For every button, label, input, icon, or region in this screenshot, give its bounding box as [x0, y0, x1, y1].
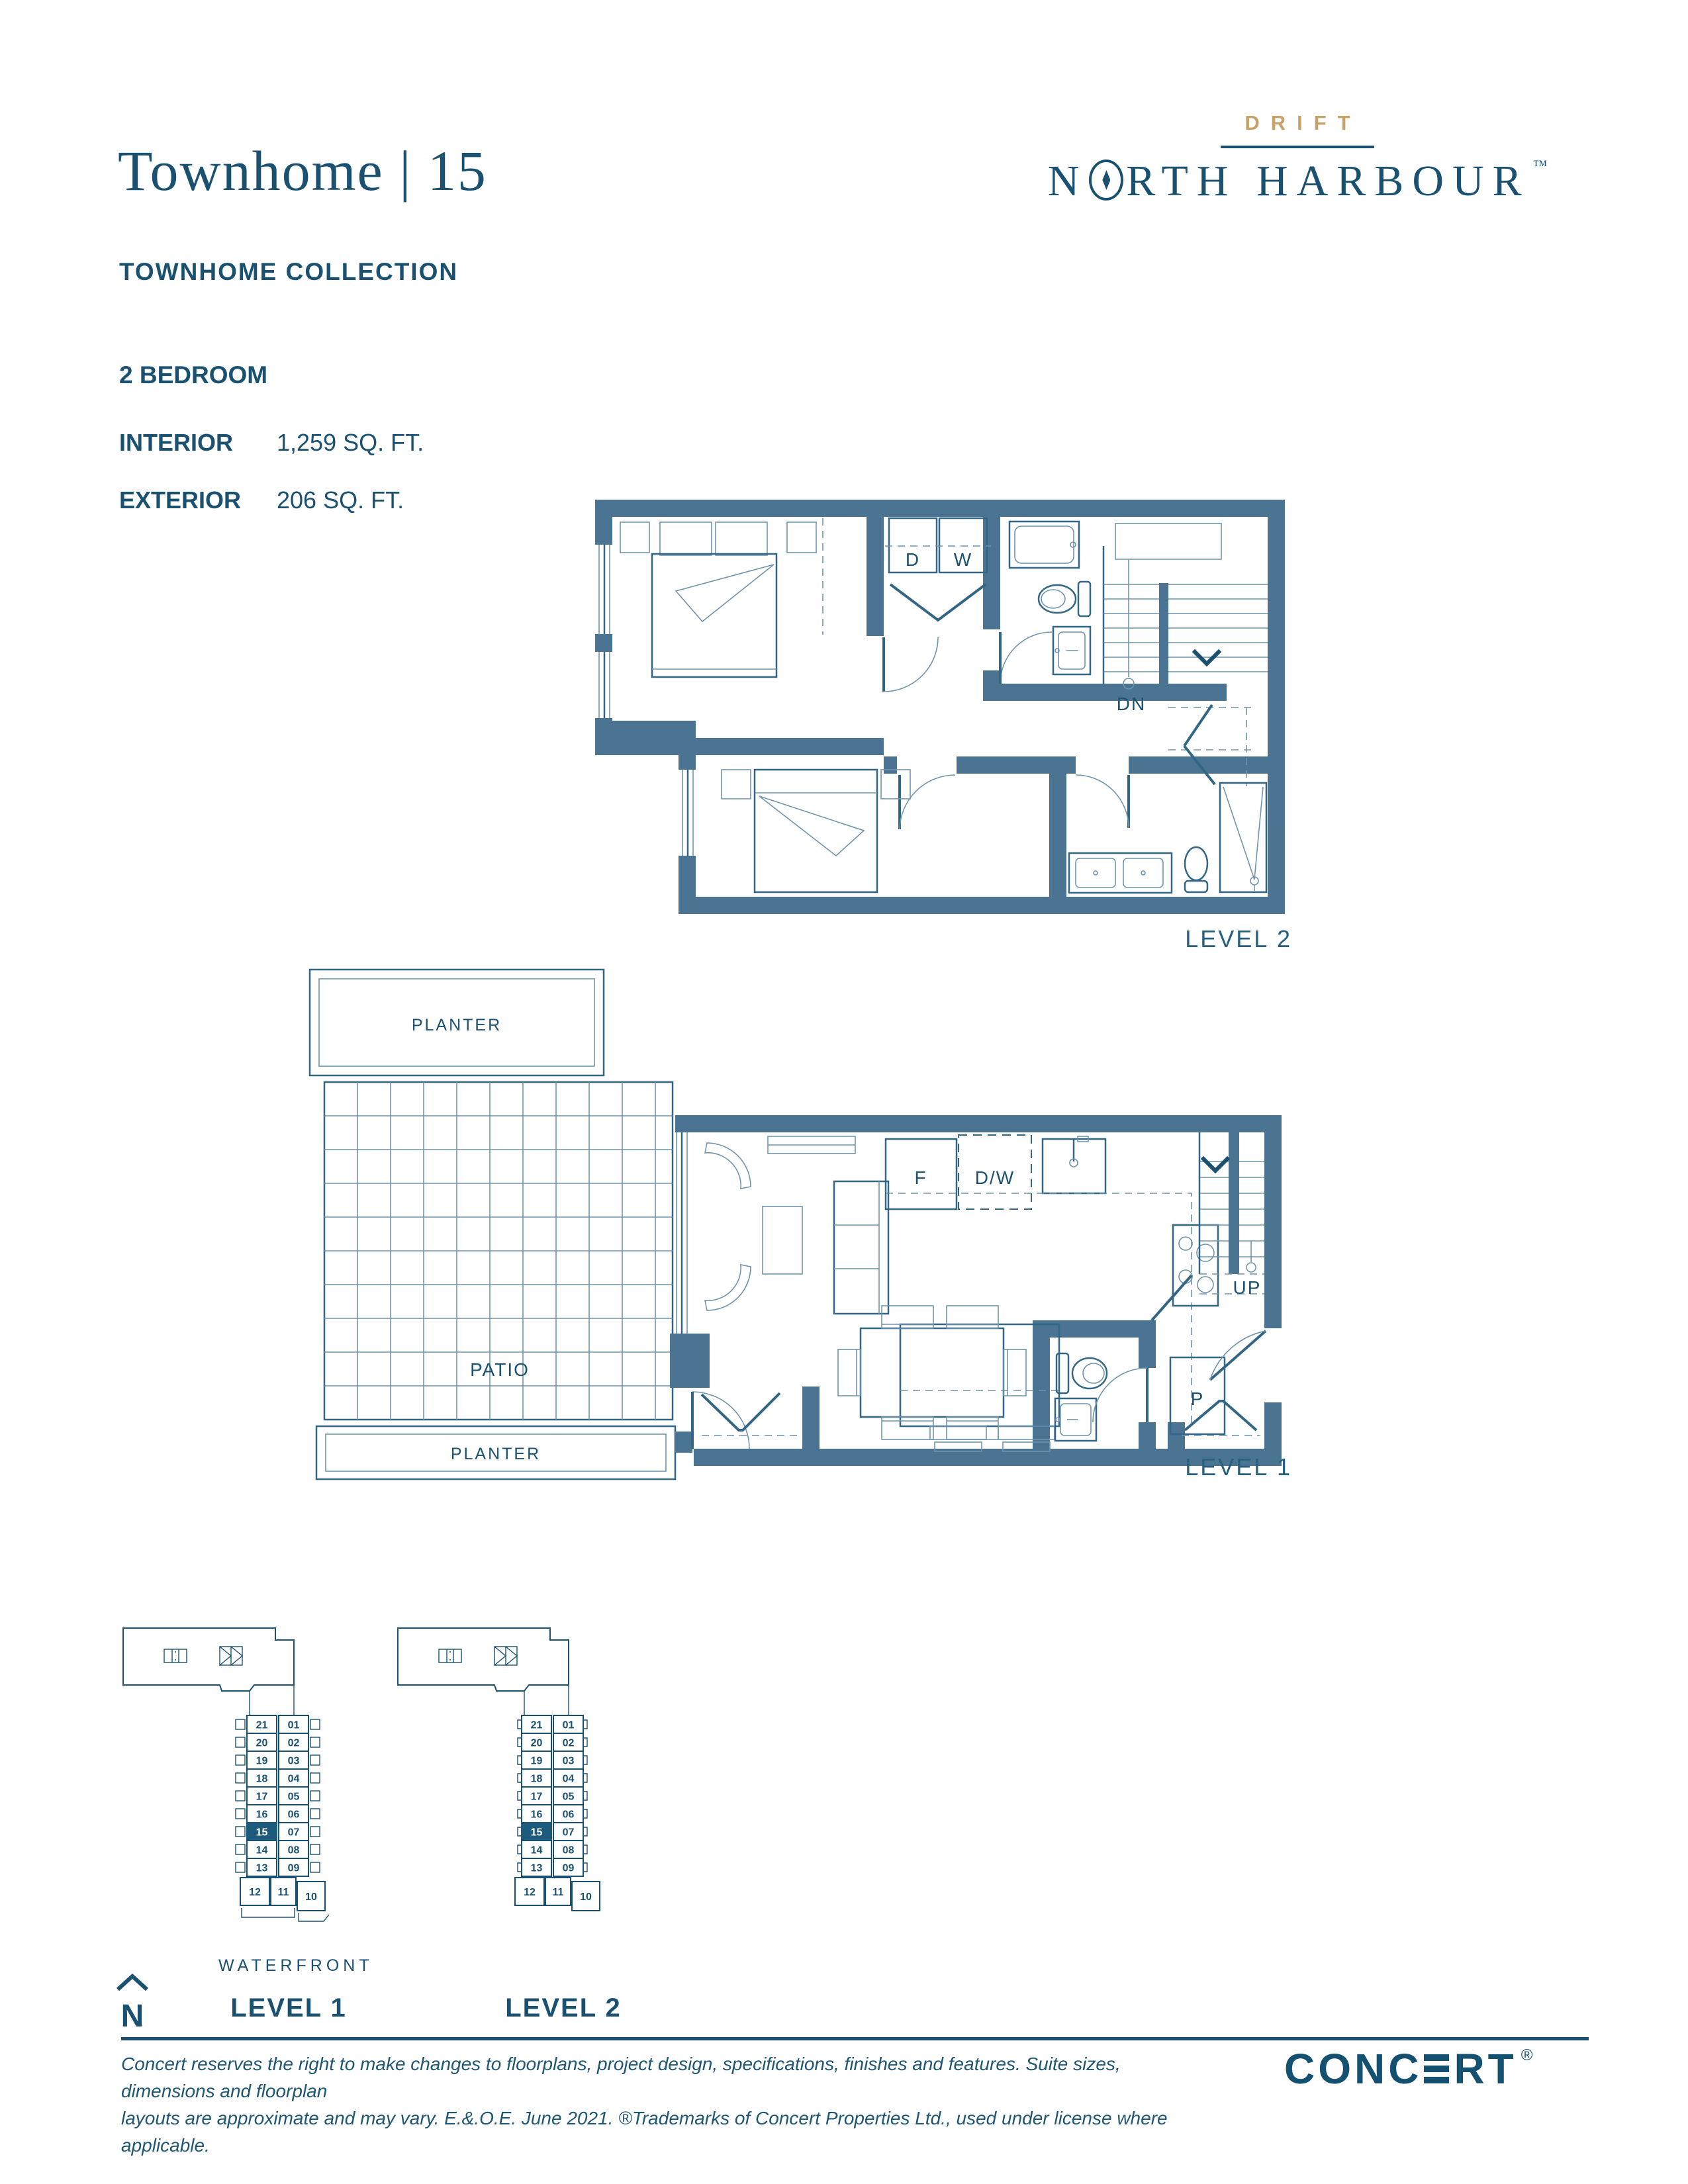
keyplan-unit-09: 09 — [288, 1863, 300, 1874]
level1-entry — [702, 1331, 1266, 1435]
keyplan-unit-07: 07 — [563, 1827, 575, 1839]
keyplan-unit-05: 05 — [563, 1792, 575, 1803]
level2-laundry: D W — [885, 518, 991, 620]
level1-living-furniture — [705, 1136, 888, 1314]
keyplan-unit-06: 06 — [288, 1809, 300, 1821]
keyplan-unit-03: 03 — [288, 1756, 300, 1767]
keyplan-unit-12: 12 — [249, 1887, 261, 1898]
keyplan-unit-20: 20 — [531, 1738, 543, 1749]
bath-door-arc — [1000, 632, 1052, 684]
ensuite-toilet-icon — [1185, 847, 1207, 880]
keyplan-unit-11: 11 — [553, 1887, 564, 1898]
level2-windows — [594, 545, 697, 856]
keyplan-unit-14: 14 — [256, 1845, 268, 1856]
level2-walkin-closet — [1168, 705, 1251, 786]
level2-floorplan: D W DN — [586, 485, 1294, 929]
level1-planter-bottom: PLANTER — [316, 1426, 675, 1479]
north-rest: RTH HARBOUR — [1126, 157, 1530, 205]
registered-symbol: ® — [1521, 2048, 1533, 2064]
keyplan-unit-16: 16 — [256, 1809, 268, 1821]
toilet-icon — [1039, 585, 1076, 613]
keyplan-unit-20: 20 — [256, 1738, 268, 1749]
hall-closet-bifold — [702, 1393, 780, 1430]
level1-patio: PATIO — [324, 1082, 673, 1420]
coffee-table-icon — [763, 1206, 802, 1274]
keyplan-unit-07: 07 — [288, 1827, 300, 1839]
bedroom-count: 2 BEDROOM — [119, 361, 267, 389]
interior-label: INTERIOR — [119, 429, 233, 457]
keyplan-level1: 2101200219031804170516061507140813091211… — [119, 1616, 331, 1931]
level2-ensuite — [1069, 783, 1266, 893]
keyplan-unit-13: 13 — [531, 1863, 543, 1874]
keyplan-level1-label: LEVEL 1 — [218, 1993, 359, 2023]
keyplan-unit-09: 09 — [563, 1863, 575, 1874]
keyplan-unit-15: 15 — [531, 1827, 543, 1839]
stair-up-arrow-icon — [1203, 1159, 1227, 1171]
keyplan-unit-18: 18 — [531, 1774, 543, 1785]
drift-wordmark: DRIFT — [1013, 111, 1582, 135]
keyplan-unit-19: 19 — [531, 1756, 543, 1767]
powder-toilet-icon — [1072, 1358, 1107, 1388]
lounge-chair-icon — [705, 1143, 751, 1189]
keyplan-unit-10: 10 — [305, 1891, 317, 1903]
keyplan-unit-12: 12 — [524, 1887, 536, 1898]
keyplan-unit-08: 08 — [563, 1845, 575, 1856]
dining-table-icon — [861, 1328, 1004, 1417]
keyplan-unit-06: 06 — [563, 1809, 575, 1821]
concert-word-right: RT — [1454, 2048, 1517, 2090]
exterior-spec-row: EXTERIOR 206 SQ. FT. — [119, 486, 649, 514]
elevator-icons — [164, 1647, 242, 1665]
level1-living-window — [674, 1132, 749, 1449]
compass-o-icon — [1089, 159, 1123, 201]
entry-door-leaf — [1210, 1331, 1266, 1380]
dryer-label: D — [906, 549, 920, 570]
level2-plan-label: LEVEL 2 — [1094, 925, 1292, 953]
level2-bedroom2 — [722, 770, 910, 892]
stair-down-arrow-icon — [1195, 652, 1219, 664]
interior-value: 1,259 SQ. FT. — [277, 429, 424, 457]
patio-door-arc — [692, 1392, 749, 1449]
fridge-label: F — [914, 1167, 927, 1188]
keyplan-unit-19: 19 — [256, 1756, 268, 1767]
keyplan-unit-14: 14 — [531, 1845, 543, 1856]
keyplan-unit-01: 01 — [288, 1720, 300, 1731]
concert-e-bars-icon — [1424, 2052, 1449, 2085]
exterior-value: 206 SQ. FT. — [277, 486, 404, 514]
planter-top-label: PLANTER — [412, 1016, 502, 1034]
exterior-label: EXTERIOR — [119, 486, 241, 514]
concert-word-left: CONC — [1284, 2048, 1422, 2090]
collection-subtitle: TOWNHOME COLLECTION — [119, 258, 458, 286]
keyplan-unit-04: 04 — [288, 1774, 300, 1785]
keyplan-unit-16: 16 — [531, 1809, 543, 1821]
north-label: N — [121, 1999, 144, 2033]
level1-floorplan: PLANTER PATIO PLANTER — [305, 963, 1297, 1486]
level2-doors — [884, 637, 1129, 829]
keyplan-unit-21: 21 — [256, 1720, 268, 1731]
level1-dining — [838, 1306, 1026, 1439]
level1-plan-label: LEVEL 1 — [1094, 1453, 1292, 1481]
floorplan-sheet: { "document": { "plan_name": "Townhome |… — [0, 0, 1688, 2184]
elevator-icons — [439, 1647, 517, 1665]
keyplan-unit-13: 13 — [256, 1863, 268, 1874]
keyplan-unit-03: 03 — [563, 1756, 575, 1767]
footer-divider-line — [121, 2037, 1589, 2040]
trademark-symbol: ™ — [1533, 157, 1548, 173]
stairs-up-label: UP — [1233, 1277, 1262, 1298]
waterfront-label: WATERFRONT — [218, 1956, 359, 1976]
sofa-icon — [834, 1181, 888, 1314]
washer-label: W — [954, 549, 972, 570]
keyplan-unit-08: 08 — [288, 1845, 300, 1856]
keyplan-unit-10: 10 — [580, 1891, 592, 1903]
page-title: Townhome | 15 — [118, 138, 487, 204]
north-n: N — [1048, 157, 1088, 205]
lounge-chair-icon — [705, 1265, 751, 1310]
keyplan-unit-21: 21 — [531, 1720, 543, 1731]
north-arrow: N — [113, 1972, 152, 2033]
keyplan-unit-17: 17 — [256, 1792, 268, 1803]
disclaimer-text: Concert reserves the right to make chang… — [121, 2050, 1194, 2159]
level1-planter-top: PLANTER — [310, 970, 604, 1075]
pantry-label: P — [1191, 1388, 1205, 1409]
stairs-down-label: DN — [1117, 694, 1146, 714]
keyplan-unit-11: 11 — [278, 1887, 289, 1898]
dishwasher-label: D/W — [975, 1167, 1015, 1188]
disclaimer-line2: layouts are approximate and may vary. E.… — [121, 2105, 1194, 2159]
entry-door-gap — [1263, 1328, 1283, 1402]
north-harbour-wordmark: NRTH HARBOUR™ — [1013, 156, 1582, 206]
keyplan-unit-15: 15 — [256, 1827, 268, 1839]
laundry-bifold-door — [890, 584, 986, 620]
level2-bedroom1 — [620, 518, 823, 677]
keyplan-unit-17: 17 — [531, 1792, 543, 1803]
keyplan-unit-18: 18 — [256, 1774, 268, 1785]
keyplan-unit-04: 04 — [563, 1774, 575, 1785]
keyplan-unit-02: 02 — [563, 1738, 575, 1749]
double-vanity-icon — [1069, 853, 1172, 893]
stove-icon — [1173, 1225, 1218, 1306]
interior-spec-row: INTERIOR 1,259 SQ. FT. — [119, 429, 649, 457]
level1-powder-room — [1055, 1353, 1147, 1441]
keyplan-unit-01: 01 — [563, 1720, 575, 1731]
keyplan-level2-label: LEVEL 2 — [493, 1993, 633, 2023]
keyplan-unit-02: 02 — [288, 1738, 300, 1749]
concert-logo: CONC RT ® — [1284, 2048, 1532, 2090]
logo-divider-line — [1221, 146, 1374, 148]
planter-bottom-label: PLANTER — [451, 1445, 541, 1463]
drift-north-harbour-logo: DRIFT NRTH HARBOUR™ — [1013, 111, 1582, 206]
keyplan-level2: 2101200219031804170516061507140813091211… — [394, 1616, 606, 1931]
patio-label: PATIO — [470, 1359, 530, 1380]
keyplan-unit-05: 05 — [288, 1792, 300, 1803]
disclaimer-line1: Concert reserves the right to make chang… — [121, 2050, 1194, 2105]
level2-bathroom — [1000, 522, 1090, 684]
